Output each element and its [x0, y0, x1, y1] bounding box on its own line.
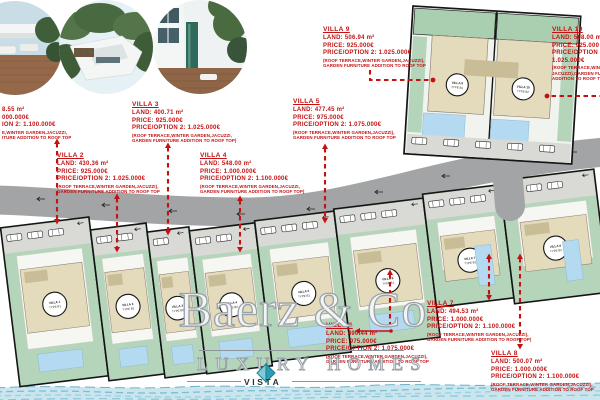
photo-aerial-villas [50, 0, 164, 105]
masterplan-canvas: VILLA 1TYPE B1VILLA 2TYPE B1VILLA 3TYPE … [0, 0, 600, 400]
watermark-tagline: LUXURY HOMES [197, 354, 428, 375]
watermark-divider-bottom-right [292, 381, 421, 382]
cul-de-sac-road [507, 168, 510, 206]
plot-villas-9-10: VILLA 9TYPE B1VILLA 10TYPE B2 [404, 6, 581, 164]
svg-text:TYPE B2: TYPE B2 [517, 89, 530, 94]
sea-water [0, 383, 600, 400]
watermark-brand: Baerz & Co [148, 280, 458, 338]
vista-logo-text: VISTA [244, 377, 281, 387]
site-plan-drawing: VILLA 1TYPE B1VILLA 2TYPE B1VILLA 3TYPE … [0, 0, 600, 400]
photo-strip [0, 0, 255, 105]
photo-villa-pool [150, 0, 255, 105]
watermark-divider-bottom-left [187, 381, 241, 382]
svg-text:TYPE B1: TYPE B1 [451, 85, 464, 90]
watermark-divider-top [199, 350, 404, 351]
